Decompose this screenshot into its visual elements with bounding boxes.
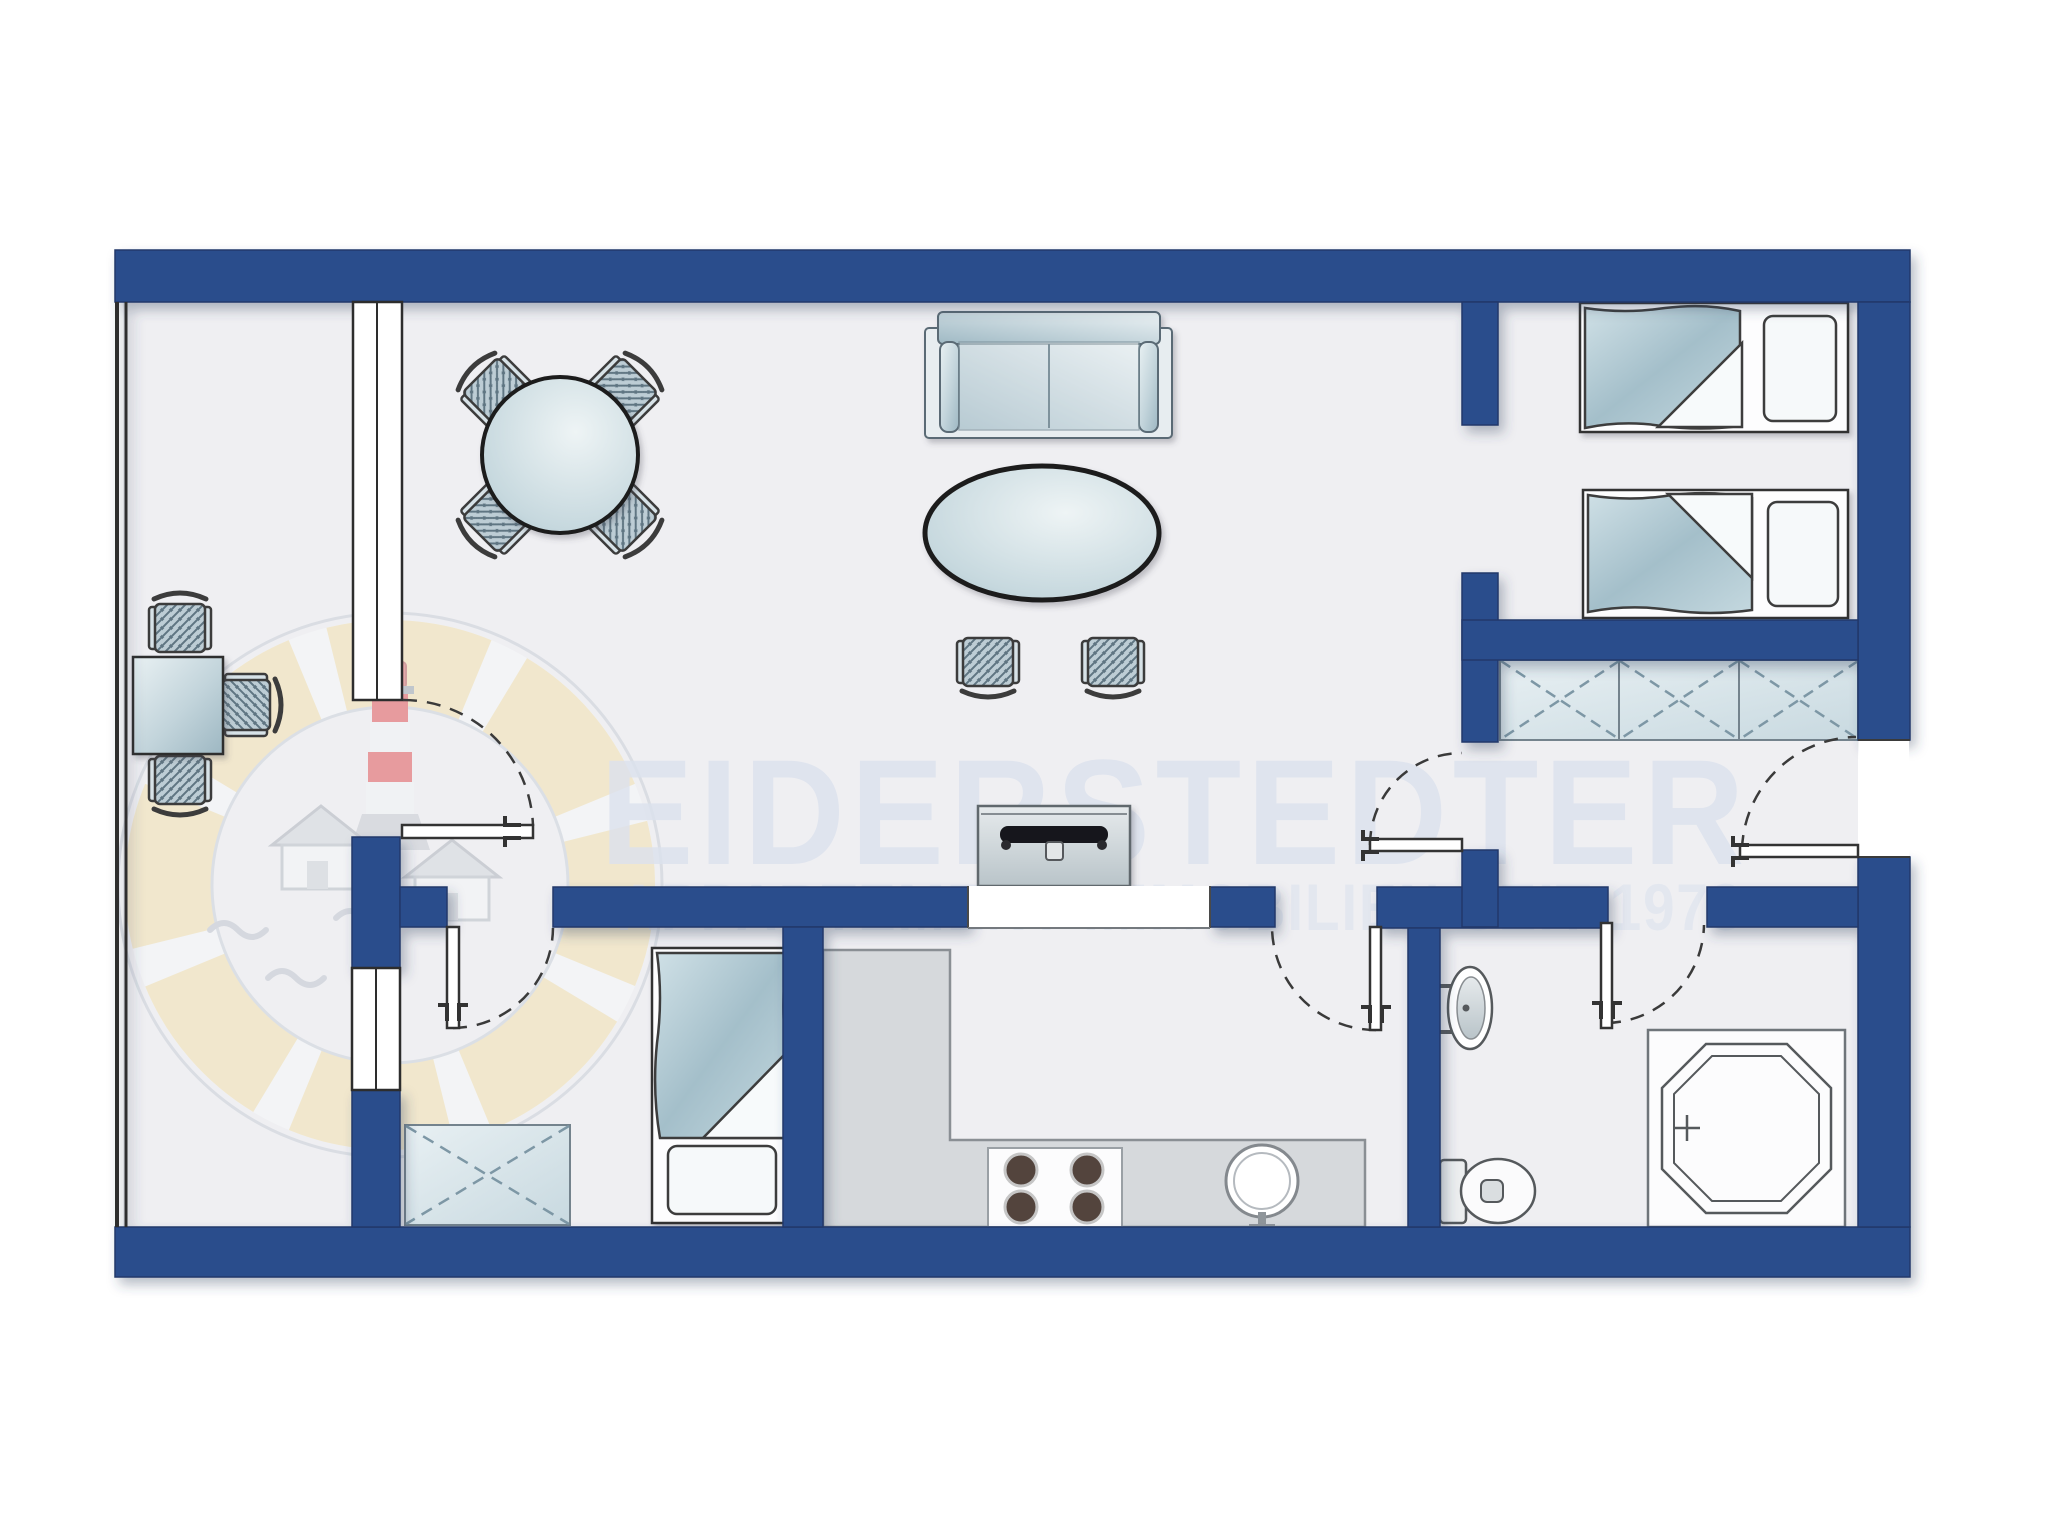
round-dining-table [482,377,638,533]
wall-living-kitchen [553,887,968,927]
wall-hall-bath-right [1707,887,1858,927]
wall-left-partition-mid [352,837,400,968]
wall-stub [400,887,447,927]
pillow [1764,316,1836,421]
wall-kitchen-bath [1408,928,1440,1227]
wall-left-partition-low [352,1090,400,1227]
tv-icon [1000,826,1108,843]
single-bed [652,948,792,1223]
wall-niche [968,886,1210,928]
sofa [925,312,1172,438]
single-bed [1580,303,1848,432]
floorplan-canvas: EIDERSTEDTER APPARTEMENT IMMOBILIEN SEIT… [0,0,2048,1538]
toilet [1440,1159,1535,1223]
window [352,968,400,1090]
wall-top [115,250,1910,302]
single-bed [1583,490,1848,618]
wall-right-of-niche [1210,887,1275,927]
oval-coffee-table [925,466,1159,600]
wardrobe [405,1125,570,1225]
pillow [668,1146,776,1214]
wall-bottom [115,1227,1910,1277]
tv-sideboard [978,806,1130,886]
built-in-wardrobe [1500,660,1858,740]
wall-bedroom-bottom [1462,620,1858,660]
pillow [1768,502,1838,606]
partition-window [353,302,402,700]
wall-right-upper [1858,302,1910,740]
desk [133,657,223,754]
shower [1648,1030,1845,1227]
dining-set [450,345,669,564]
wall-kitchen-left [783,927,823,1227]
wall-bedroom-stub-top [1462,302,1498,425]
wall-right-lower [1858,857,1910,1227]
entry-opening [1858,740,1910,857]
wall-hall-left-lower [1462,850,1498,927]
floorplan-page: EIDERSTEDTER APPARTEMENT IMMOBILIEN SEIT… [0,0,2048,1538]
